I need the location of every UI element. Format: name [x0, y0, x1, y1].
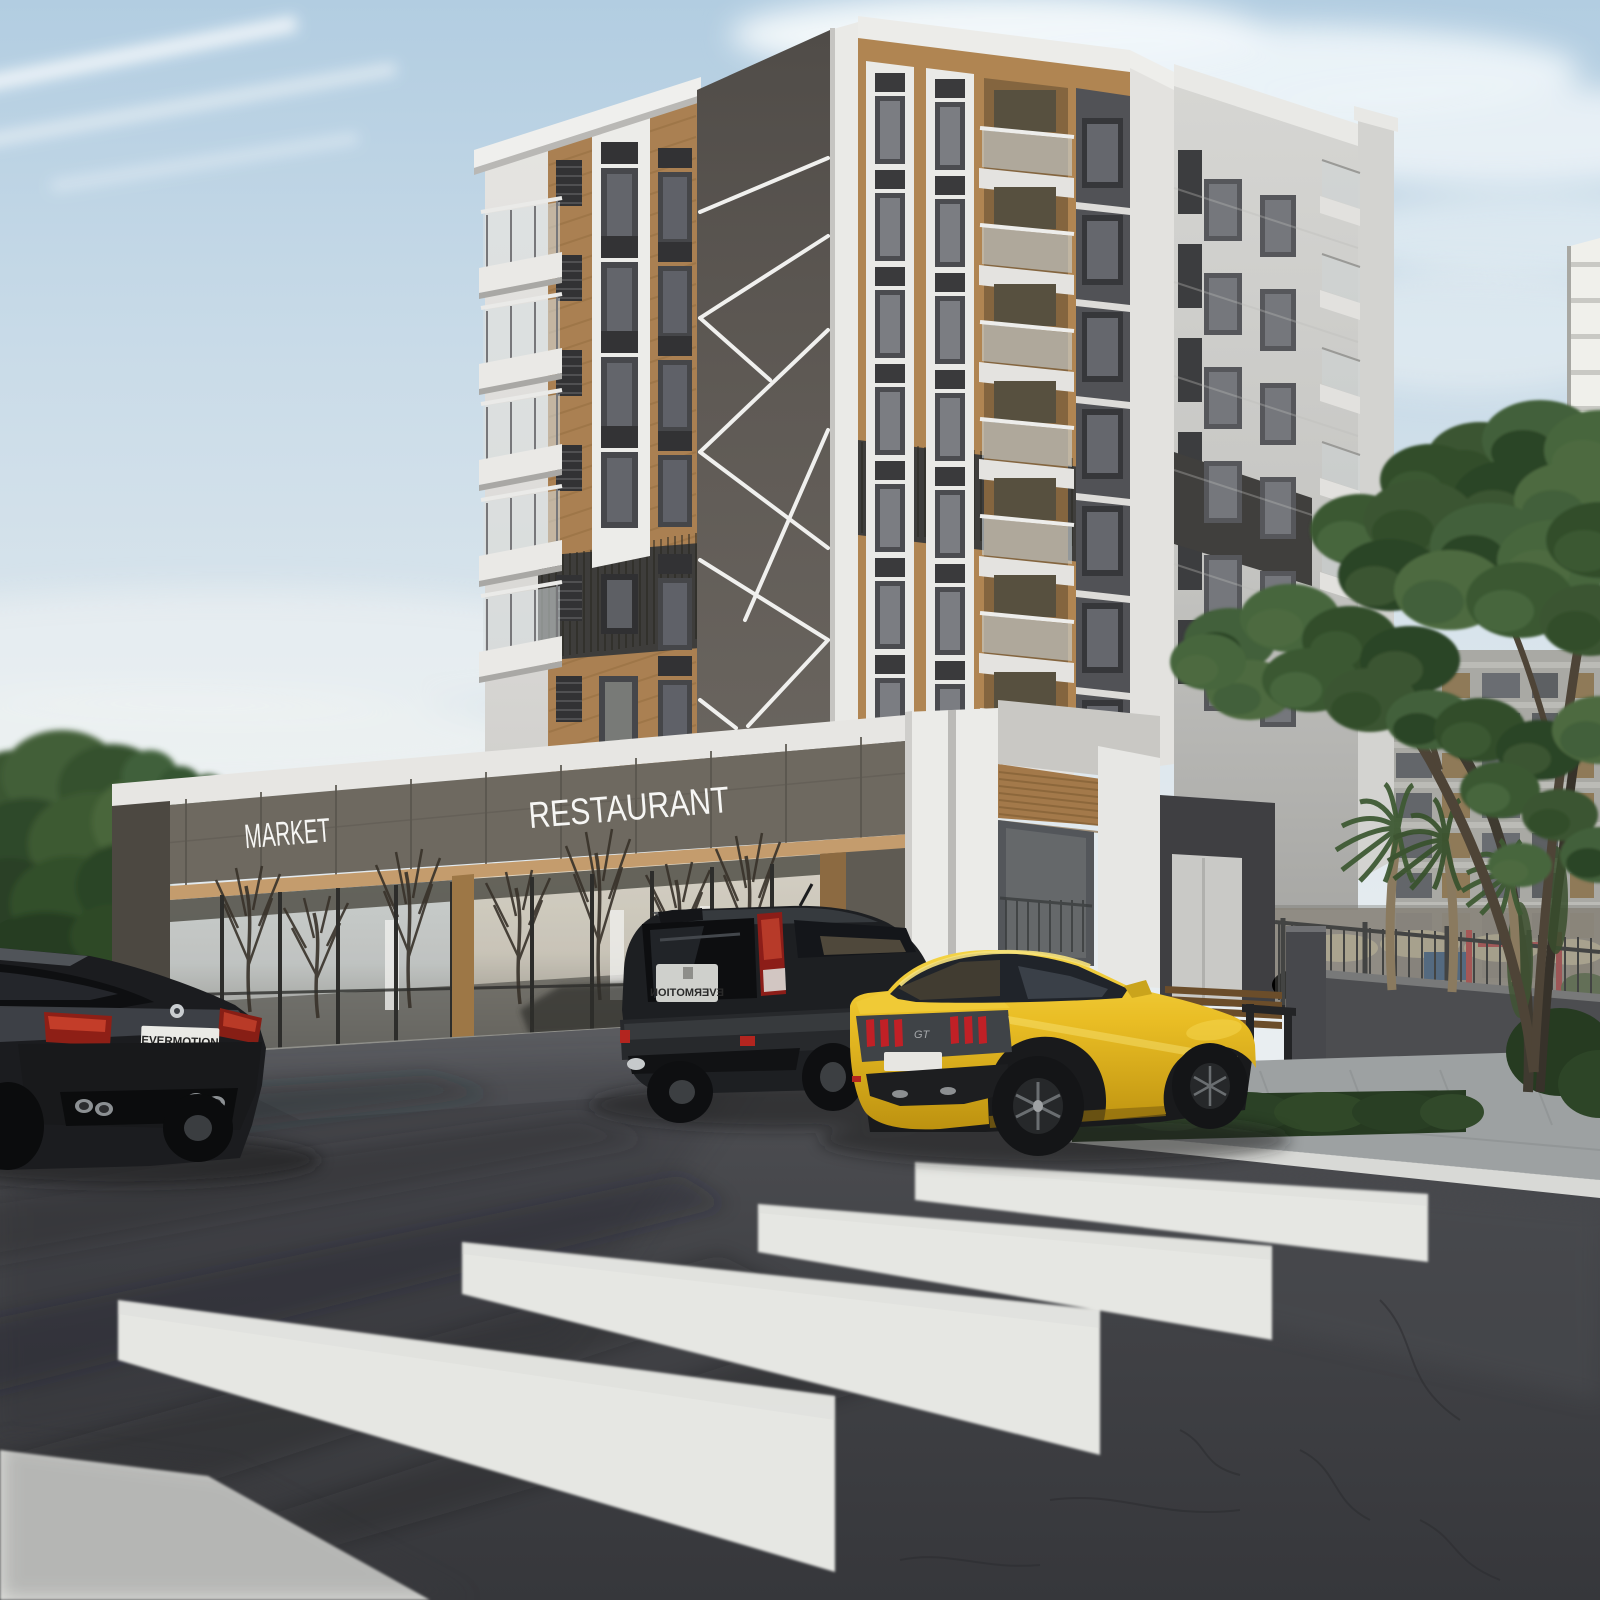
svg-text:GT: GT — [914, 1029, 931, 1041]
svg-text:EVERMOTION: EVERMOTION — [650, 987, 724, 999]
svg-text:MARKET: MARKET — [243, 811, 332, 856]
